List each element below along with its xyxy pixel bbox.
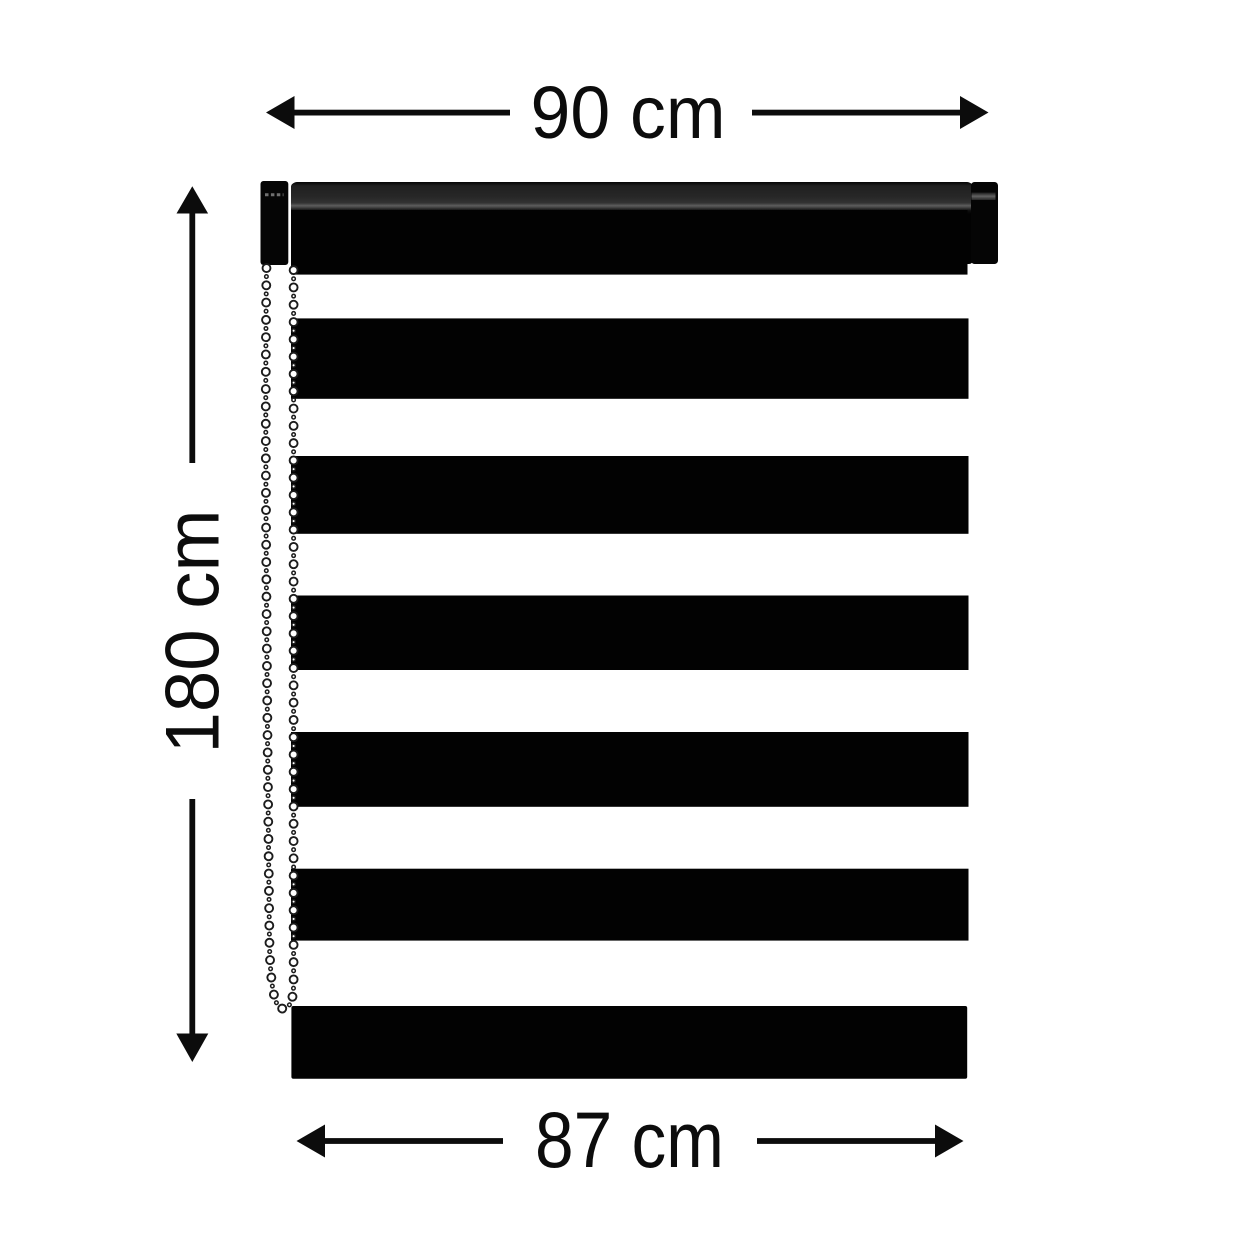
svg-text:87 cm: 87 cm [535, 1096, 724, 1184]
svg-text:90 cm: 90 cm [531, 71, 726, 154]
svg-text:180 cm: 180 cm [151, 510, 236, 754]
